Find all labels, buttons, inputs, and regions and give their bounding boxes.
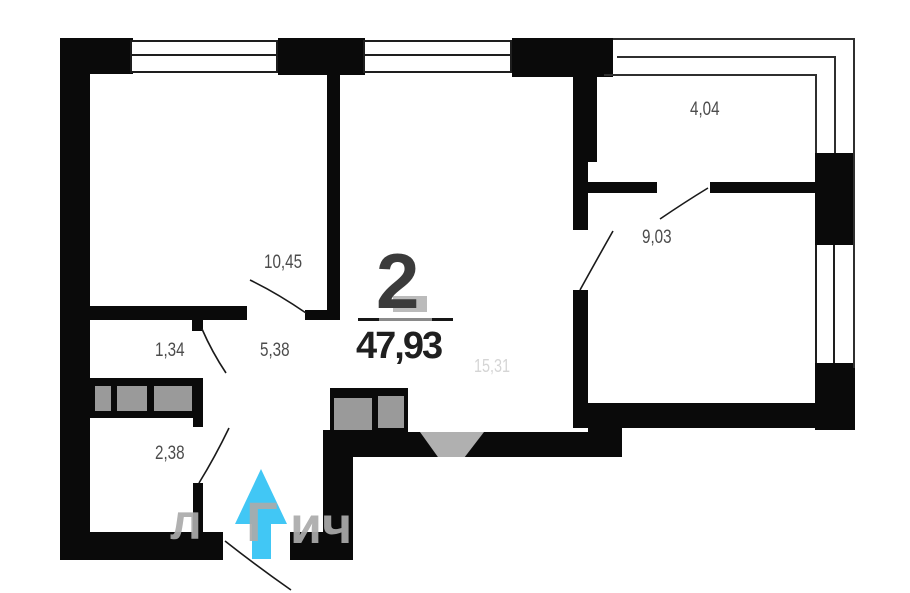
rooms-count: 2 xyxy=(376,242,419,320)
room-area-label-bedroom: 10,45 xyxy=(264,252,302,274)
room-area-label-living: 15,31 xyxy=(474,356,510,377)
wall-segment xyxy=(88,306,247,320)
wardrobe-cell xyxy=(117,386,147,411)
wall-segment xyxy=(512,38,613,77)
wall-segment xyxy=(573,290,588,428)
door-swing xyxy=(580,231,613,290)
wardrobe-cell xyxy=(95,386,111,411)
wall-segment xyxy=(573,74,597,162)
window xyxy=(363,40,512,73)
wall-segment xyxy=(278,38,365,75)
wall-segment xyxy=(80,38,133,74)
wall-segment xyxy=(573,160,588,230)
door-swing xyxy=(250,280,306,313)
kitchen-cell xyxy=(334,398,372,430)
room-area-label-hallway: 5,38 xyxy=(260,340,290,362)
wall-segment xyxy=(60,38,90,560)
room-area-label-closet: 1,34 xyxy=(155,340,185,362)
apartment-floor-plan: 10,45 15,31 9,03 5,38 2,38 1,34 4,04 2 4… xyxy=(0,0,910,593)
window xyxy=(130,40,278,73)
wardrobe-cell xyxy=(154,386,192,411)
watermark-fragment: ич xyxy=(290,500,352,552)
watermark-fragment: л xyxy=(170,497,202,547)
total-area: 47,93 xyxy=(356,325,441,368)
door-stub xyxy=(192,318,203,331)
wall-segment xyxy=(327,74,340,320)
title-divider xyxy=(358,318,453,321)
room-area-label-balcony: 4,04 xyxy=(690,99,720,121)
door-swing xyxy=(199,428,229,483)
watermark-fragment: Г xyxy=(246,494,278,550)
room-area-label-bathroom: 2,38 xyxy=(155,443,185,465)
room-area-label-second-room: 9,03 xyxy=(642,227,672,249)
wall-segment xyxy=(588,403,855,428)
kitchen-cell xyxy=(378,396,404,428)
door-swing xyxy=(202,329,226,373)
